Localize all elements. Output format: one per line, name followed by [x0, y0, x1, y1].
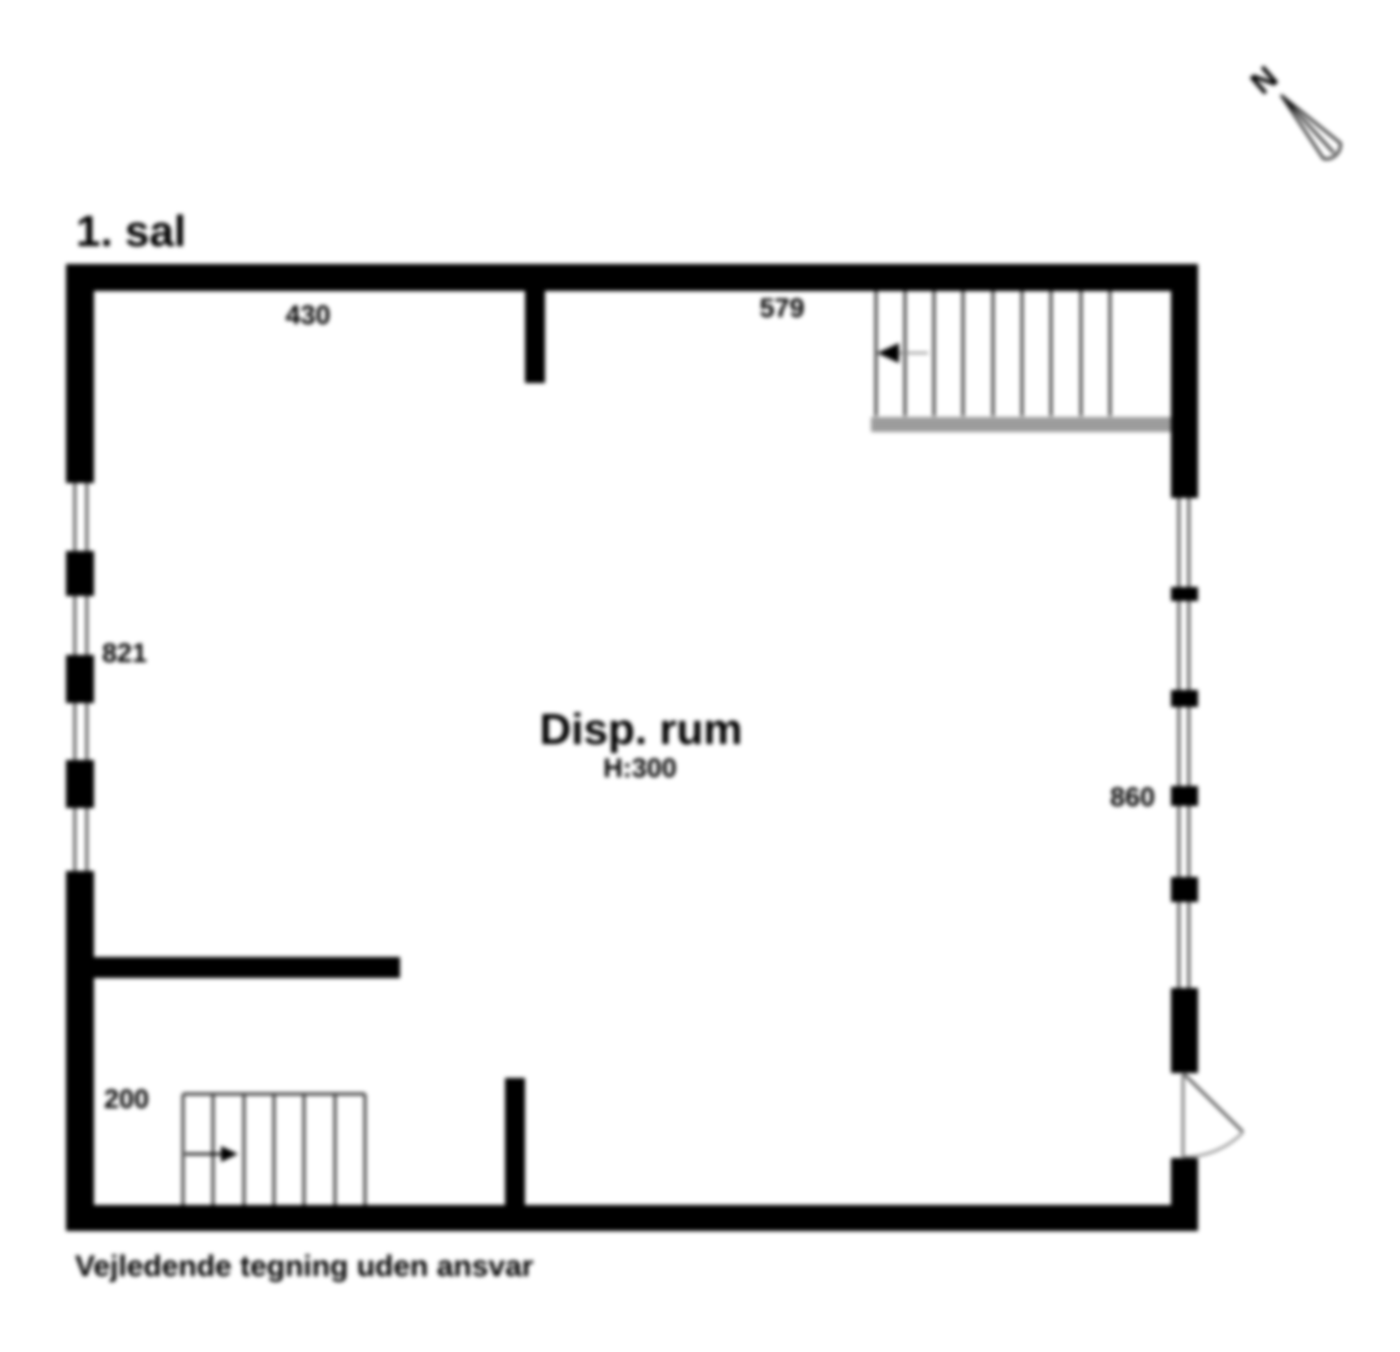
svg-text:430: 430	[285, 300, 330, 330]
svg-text:200: 200	[104, 1084, 149, 1114]
svg-text:821: 821	[102, 638, 147, 668]
svg-text:579: 579	[759, 293, 804, 323]
svg-text:Disp. rum: Disp. rum	[540, 705, 743, 754]
svg-text:860: 860	[1110, 782, 1155, 812]
svg-text:H:300: H:300	[603, 753, 677, 783]
svg-text:1. sal: 1. sal	[76, 207, 186, 256]
svg-text:Vejledende tegning uden ansvar: Vejledende tegning uden ansvar	[75, 1250, 534, 1283]
svg-text:N: N	[1243, 59, 1284, 101]
